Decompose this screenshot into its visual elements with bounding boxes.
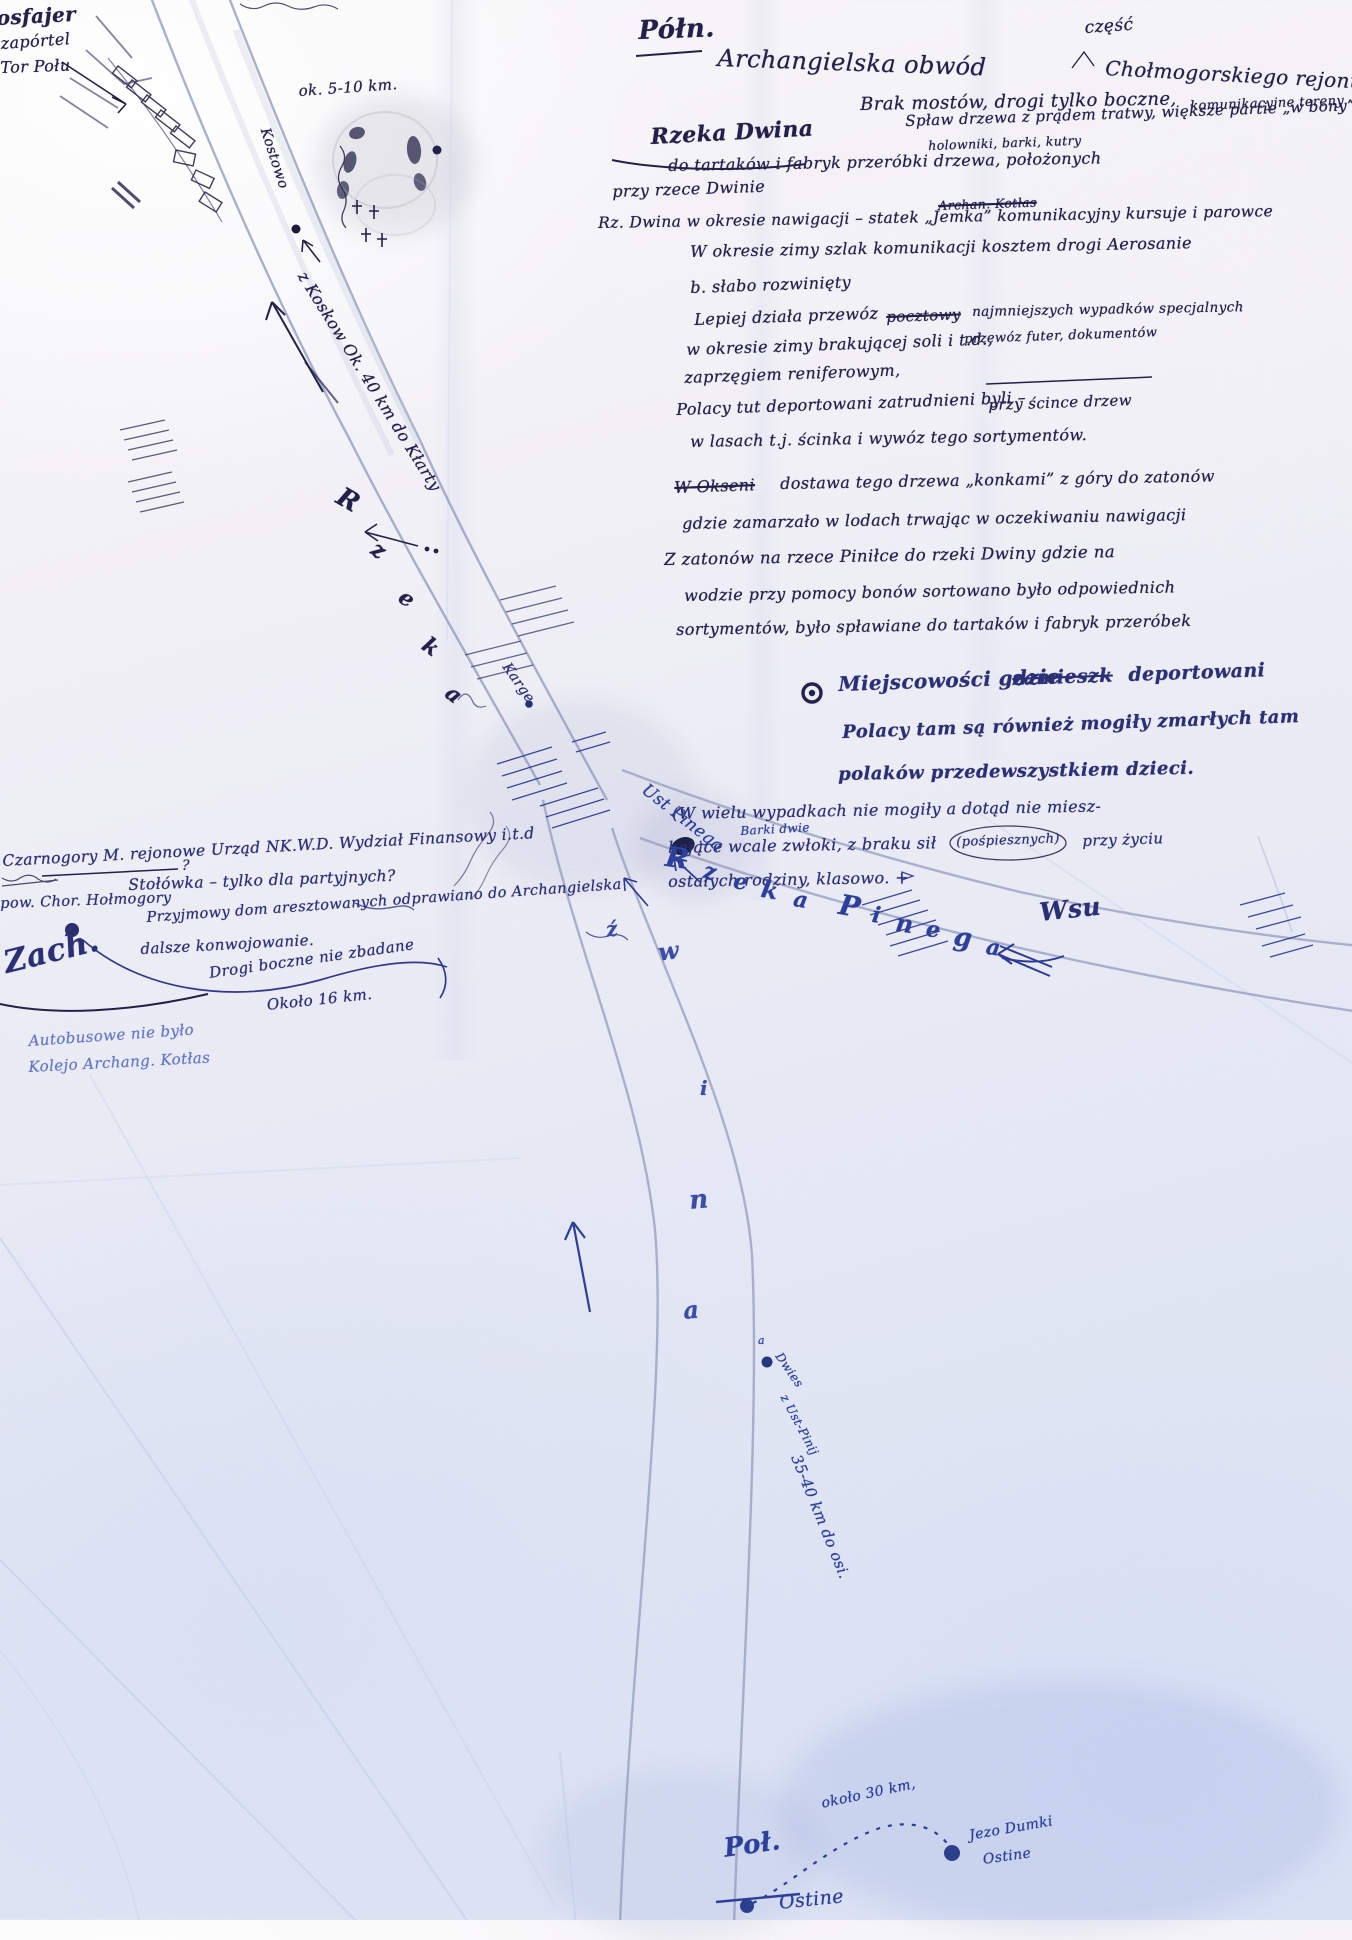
pinega-letter: a <box>984 934 1002 962</box>
note-line: przy życiu <box>1082 829 1164 850</box>
compass-north: Półn. <box>638 13 715 46</box>
scanned-hand-drawn-map: { "colors": {"ink_dark":"#23214a","ink_m… <box>0 0 1352 1920</box>
river-dwina-south <box>543 800 754 1920</box>
pinega-letter: g <box>952 922 975 954</box>
corner-note-line3: Tor Połu <box>0 56 71 77</box>
pinega-letter: R <box>663 840 691 876</box>
page-title-insert: część <box>1084 15 1134 38</box>
note-word-struck: pocztowy <box>886 305 961 326</box>
illegible-scribbles <box>2 3 628 940</box>
dwina-letter: i <box>700 1076 708 1100</box>
left-note-qmark: ? <box>182 858 190 874</box>
dwina-letter: w <box>656 935 681 967</box>
dwina-letter: a <box>682 1295 700 1325</box>
roads <box>83 903 950 1903</box>
dot-mark: a <box>758 1334 765 1347</box>
tributary-forks <box>60 16 222 222</box>
note-word-struck: W Okseni <box>674 475 755 497</box>
corner-note-line1: osfajer <box>0 2 77 30</box>
dwina-letter: n <box>688 1184 710 1216</box>
underline-marks <box>0 51 1152 1902</box>
note-word-struck: zamieszk <box>1012 664 1113 689</box>
